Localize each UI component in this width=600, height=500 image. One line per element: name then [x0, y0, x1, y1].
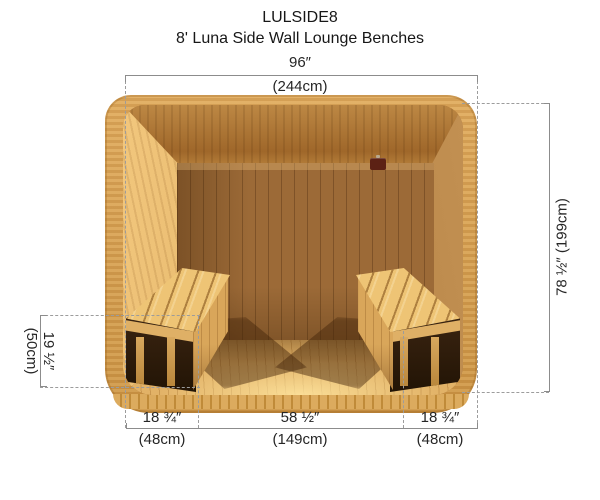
width-cm-label: (244cm) — [272, 78, 327, 95]
width-dimension-line — [125, 75, 478, 76]
sauna-illustration — [105, 95, 477, 413]
width-inches-label: 96″ — [289, 54, 311, 71]
right-bench-depth-inches: 18 ¾″ — [421, 409, 460, 426]
extension-right-edge — [477, 76, 478, 428]
height-dimension-line — [549, 103, 550, 392]
extension-left-edge — [125, 76, 126, 428]
title-block: LULSIDE8 8' Luna Side Wall Lounge Benche… — [0, 7, 600, 49]
height-extension-top — [462, 103, 549, 104]
right-bench-depth-cm: (48cm) — [417, 431, 464, 448]
product-name: 8' Luna Side Wall Lounge Benches — [0, 28, 600, 49]
wall-vent — [370, 158, 386, 170]
right-bench-leg — [431, 337, 439, 386]
sauna-ceiling — [123, 105, 463, 163]
height-label: 78 ½″ (199cm) — [554, 198, 571, 296]
product-code: LULSIDE8 — [0, 7, 600, 28]
bottom-dimension-line — [126, 428, 478, 429]
floor-span-inches: 58 ½″ — [281, 409, 320, 426]
bench-height-extension-top — [40, 315, 200, 316]
left-bench-depth-cm: (48cm) — [139, 431, 186, 448]
extension-left-bench-edge — [198, 316, 199, 428]
bench-height-cm: (50cm) — [23, 328, 40, 375]
bench-height-extension-bottom — [40, 387, 200, 388]
floor-span-cm: (149cm) — [272, 431, 327, 448]
extension-right-bench-edge — [403, 331, 404, 428]
bench-height-label: 19 ½″ (50cm) — [23, 328, 57, 375]
left-bench-leg — [136, 337, 144, 386]
left-bench-leg — [167, 337, 175, 386]
diagram-canvas: LULSIDE8 8' Luna Side Wall Lounge Benche… — [0, 0, 600, 500]
bench-height-inches: 19 ½″ — [40, 332, 57, 371]
sauna-interior — [123, 105, 463, 395]
floor-cross-section — [113, 394, 469, 409]
left-bench-depth-inches: 18 ¾″ — [143, 409, 182, 426]
height-extension-bottom — [462, 392, 549, 393]
